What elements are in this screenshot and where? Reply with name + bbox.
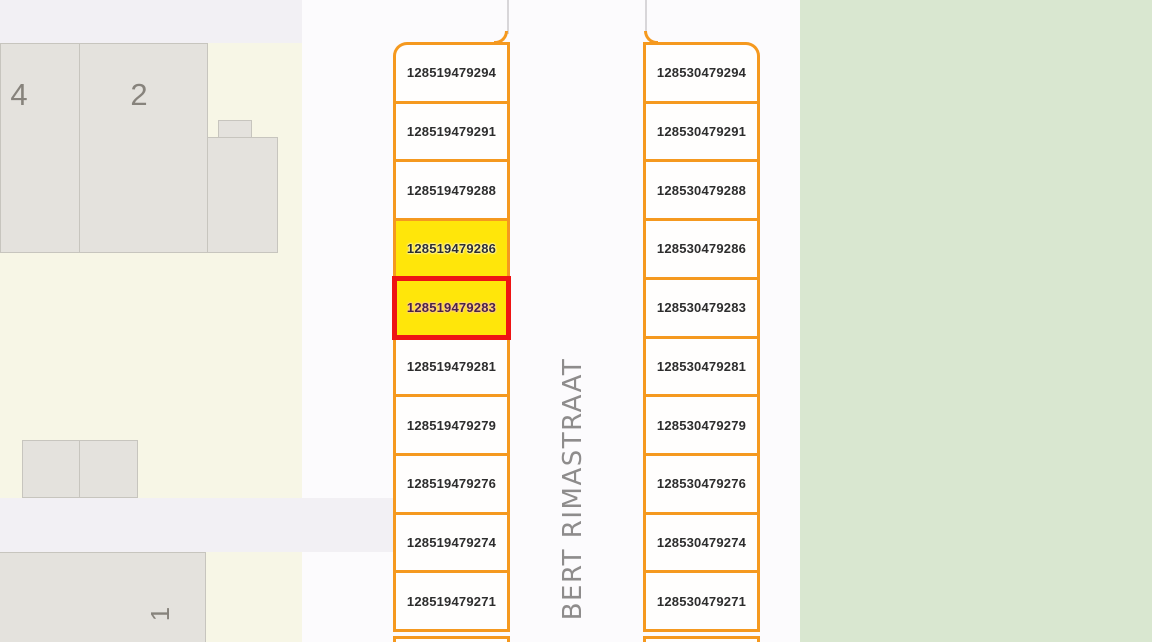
bay-cell[interactable]: 128530479271 [646,573,757,629]
bay-cell-partial-right[interactable] [643,636,760,642]
bay-cell[interactable]: 128530479291 [646,104,757,160]
bay-cell[interactable]: 128530479294 [646,45,757,101]
bay-cell-selected[interactable]: 128519479283 [396,280,507,336]
map-canvas[interactable]: 4 2 1 128519479294 128519479291 12851947… [0,0,1152,642]
bay-cell[interactable]: 128519479271 [396,573,507,629]
bay-cell[interactable]: 128519479281 [396,339,507,395]
parcel-block-lower [205,552,302,642]
outbuilding-west [22,440,80,498]
road-edge-line-left [507,0,509,34]
road-surface-top [0,0,302,43]
bay-cell[interactable]: 128519479279 [396,397,507,453]
street-name-label: BERT RIMASTRAAT [552,339,594,639]
road-edge-line-right [645,0,647,34]
bay-cell-partial-left[interactable] [393,636,510,642]
building-4-label: 4 [4,78,34,112]
bay-cell[interactable]: 128519479274 [396,515,507,571]
bay-cell[interactable]: 128530479276 [646,456,757,512]
bay-column-right: 128530479294 128530479291 128530479288 1… [643,42,760,632]
bay-cell[interactable]: 128519479294 [396,45,507,101]
outbuilding-east [79,440,138,498]
bay-cell[interactable]: 128530479279 [646,397,757,453]
bay-cell[interactable]: 128530479286 [646,221,757,277]
bay-cell[interactable]: 128530479281 [646,339,757,395]
bay-cell[interactable]: 128530479274 [646,515,757,571]
bay-cell[interactable]: 128530479283 [646,280,757,336]
bay-cell[interactable]: 128530479288 [646,162,757,218]
building-2-main [79,43,208,253]
building-1 [0,552,206,642]
building-4 [0,43,80,253]
building-2-label: 2 [124,78,154,112]
building-1-label: 1 [146,599,174,629]
building-2-notch [218,120,252,138]
bay-column-left: 128519479294 128519479291 128519479288 1… [393,42,510,632]
green-field [800,0,1152,642]
bay-cell-highlighted[interactable]: 128519479286 [396,221,507,277]
building-2-annex [207,137,278,253]
bay-cell[interactable]: 128519479276 [396,456,507,512]
bay-cell[interactable]: 128519479288 [396,162,507,218]
road-surface-middle [0,498,393,552]
bay-cell[interactable]: 128519479291 [396,104,507,160]
